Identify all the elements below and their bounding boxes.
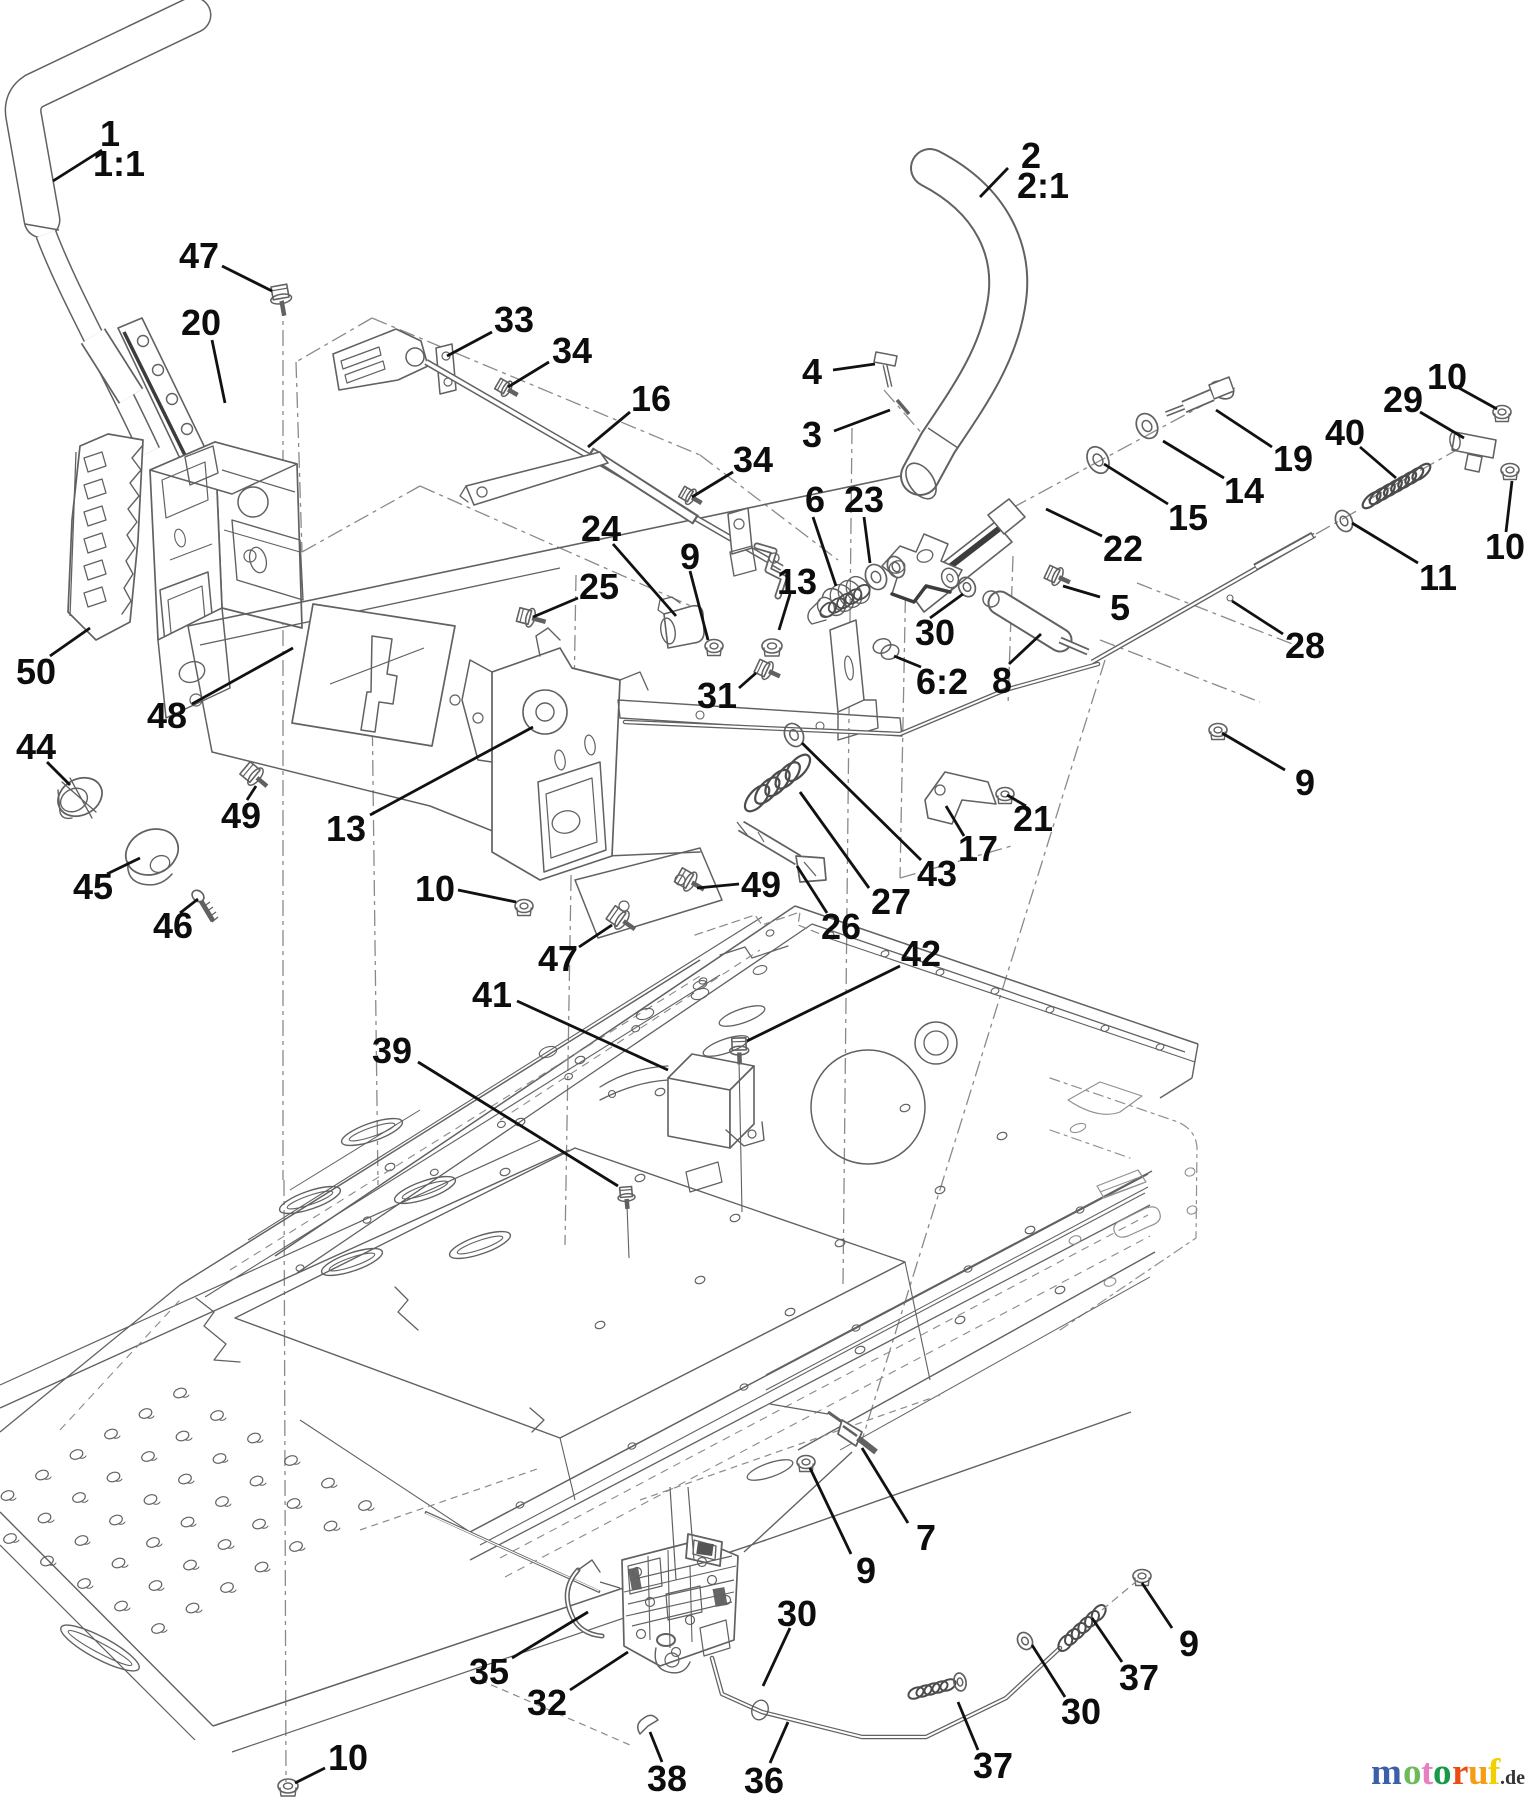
svg-text:13: 13 — [326, 808, 366, 849]
svg-text:34: 34 — [733, 439, 773, 480]
svg-text:3: 3 — [802, 414, 822, 455]
svg-text:15: 15 — [1168, 497, 1208, 538]
svg-text:50: 50 — [16, 651, 56, 692]
svg-text:30: 30 — [777, 1593, 817, 1634]
svg-text:29: 29 — [1383, 379, 1423, 420]
svg-text:34: 34 — [552, 330, 592, 371]
svg-text:45: 45 — [73, 866, 113, 907]
svg-text:49: 49 — [741, 864, 781, 905]
svg-text:40: 40 — [1325, 412, 1365, 453]
svg-text:47: 47 — [538, 938, 578, 979]
svg-text:41: 41 — [472, 974, 512, 1015]
svg-text:11: 11 — [1419, 557, 1457, 598]
svg-text:6:2: 6:2 — [916, 661, 968, 702]
svg-text:38: 38 — [647, 1758, 687, 1799]
svg-text:9: 9 — [856, 1550, 876, 1591]
svg-text:9: 9 — [680, 536, 700, 577]
svg-text:21: 21 — [1013, 798, 1053, 839]
svg-text:9: 9 — [1179, 1623, 1199, 1664]
svg-text:1:1: 1:1 — [93, 143, 145, 184]
svg-text:43: 43 — [917, 853, 957, 894]
svg-text:49: 49 — [221, 795, 261, 836]
svg-text:20: 20 — [181, 302, 221, 343]
svg-text:6: 6 — [805, 479, 825, 520]
svg-text:16: 16 — [631, 378, 671, 419]
svg-text:17: 17 — [958, 828, 998, 869]
svg-text:23: 23 — [844, 479, 884, 520]
svg-text:48: 48 — [147, 695, 187, 736]
svg-text:o: o — [1433, 1752, 1452, 1793]
svg-text:.de: .de — [1500, 1767, 1525, 1789]
svg-text:7: 7 — [916, 1517, 936, 1558]
svg-text:42: 42 — [901, 933, 941, 974]
svg-text:m: m — [1371, 1752, 1402, 1793]
svg-text:44: 44 — [16, 726, 56, 767]
svg-text:5: 5 — [1110, 587, 1130, 628]
svg-text:8: 8 — [992, 660, 1012, 701]
svg-text:30: 30 — [1061, 1691, 1101, 1732]
svg-text:10: 10 — [415, 868, 455, 909]
svg-text:33: 33 — [494, 299, 534, 340]
svg-text:14: 14 — [1224, 470, 1264, 511]
svg-text:25: 25 — [579, 566, 619, 607]
svg-text:28: 28 — [1285, 625, 1325, 666]
svg-text:13: 13 — [777, 561, 817, 602]
svg-text:4: 4 — [802, 351, 822, 392]
svg-text:26: 26 — [821, 906, 861, 947]
svg-text:10: 10 — [328, 1737, 368, 1778]
svg-text:22: 22 — [1103, 528, 1143, 569]
svg-text:27: 27 — [871, 881, 911, 922]
svg-text:o: o — [1403, 1752, 1422, 1793]
svg-text:36: 36 — [744, 1760, 784, 1800]
svg-text:r: r — [1452, 1752, 1468, 1793]
svg-text:19: 19 — [1273, 438, 1313, 479]
svg-text:10: 10 — [1427, 356, 1467, 397]
svg-text:46: 46 — [153, 905, 193, 946]
svg-text:35: 35 — [469, 1651, 509, 1692]
svg-text:u: u — [1468, 1752, 1489, 1793]
svg-text:31: 31 — [697, 675, 737, 716]
svg-text:10: 10 — [1485, 526, 1525, 567]
svg-text:24: 24 — [581, 508, 621, 549]
svg-text:32: 32 — [527, 1682, 567, 1723]
svg-text:9: 9 — [1295, 762, 1315, 803]
svg-text:2:1: 2:1 — [1017, 165, 1069, 206]
svg-text:47: 47 — [179, 235, 219, 276]
svg-text:37: 37 — [1119, 1657, 1159, 1698]
svg-text:30: 30 — [915, 612, 955, 653]
svg-text:39: 39 — [372, 1030, 412, 1071]
svg-text:37: 37 — [973, 1745, 1013, 1786]
